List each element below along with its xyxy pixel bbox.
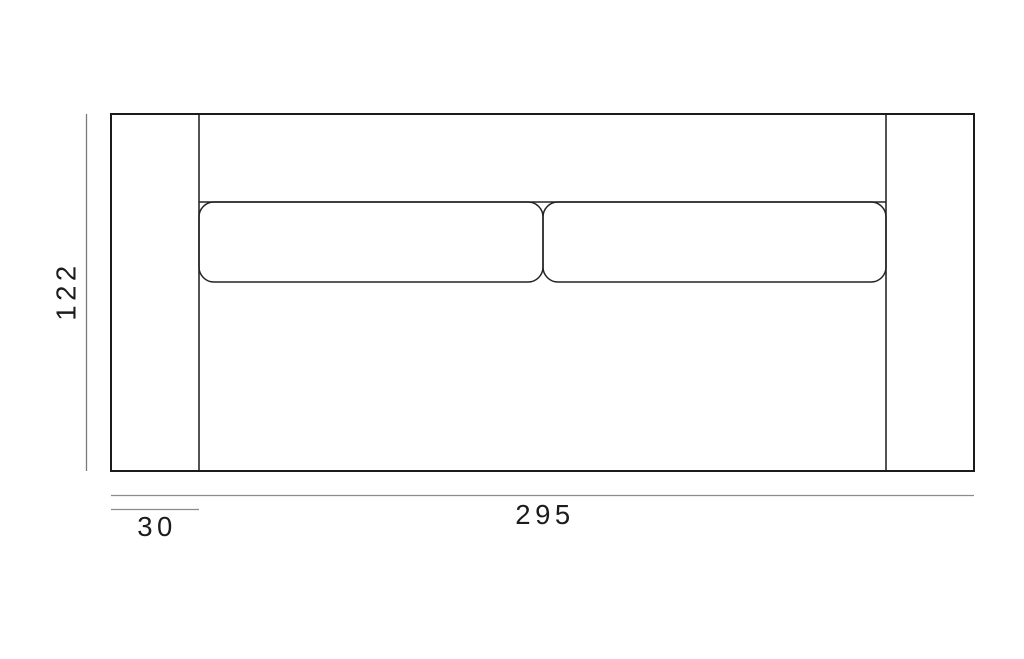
svg-text:30: 30 bbox=[137, 511, 177, 542]
svg-text:122: 122 bbox=[51, 261, 82, 320]
svg-text:295: 295 bbox=[515, 499, 574, 530]
